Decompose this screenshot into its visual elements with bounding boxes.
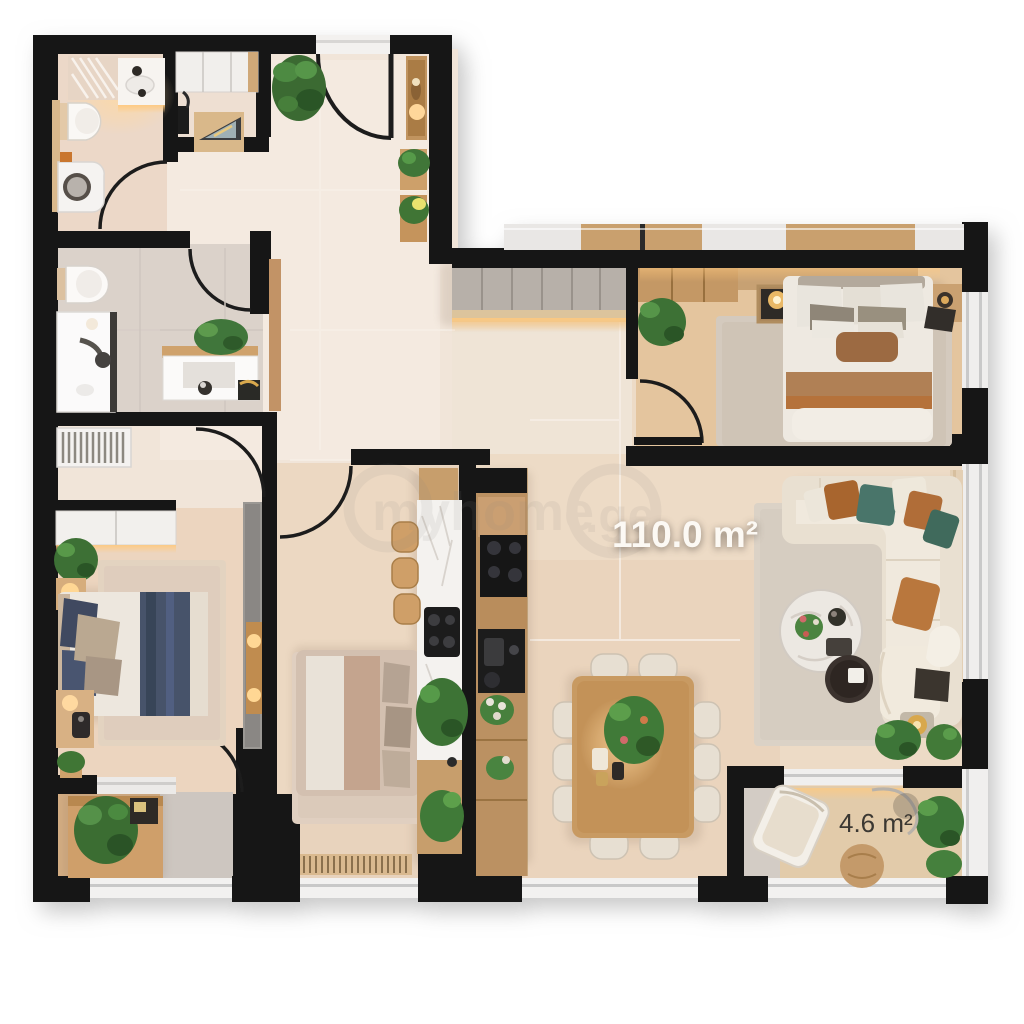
svg-text:110.0 m²: 110.0 m² — [612, 514, 758, 555]
svg-text:4.6 m²: 4.6 m² — [839, 808, 913, 838]
svg-text:myhome: myhome — [372, 482, 594, 542]
